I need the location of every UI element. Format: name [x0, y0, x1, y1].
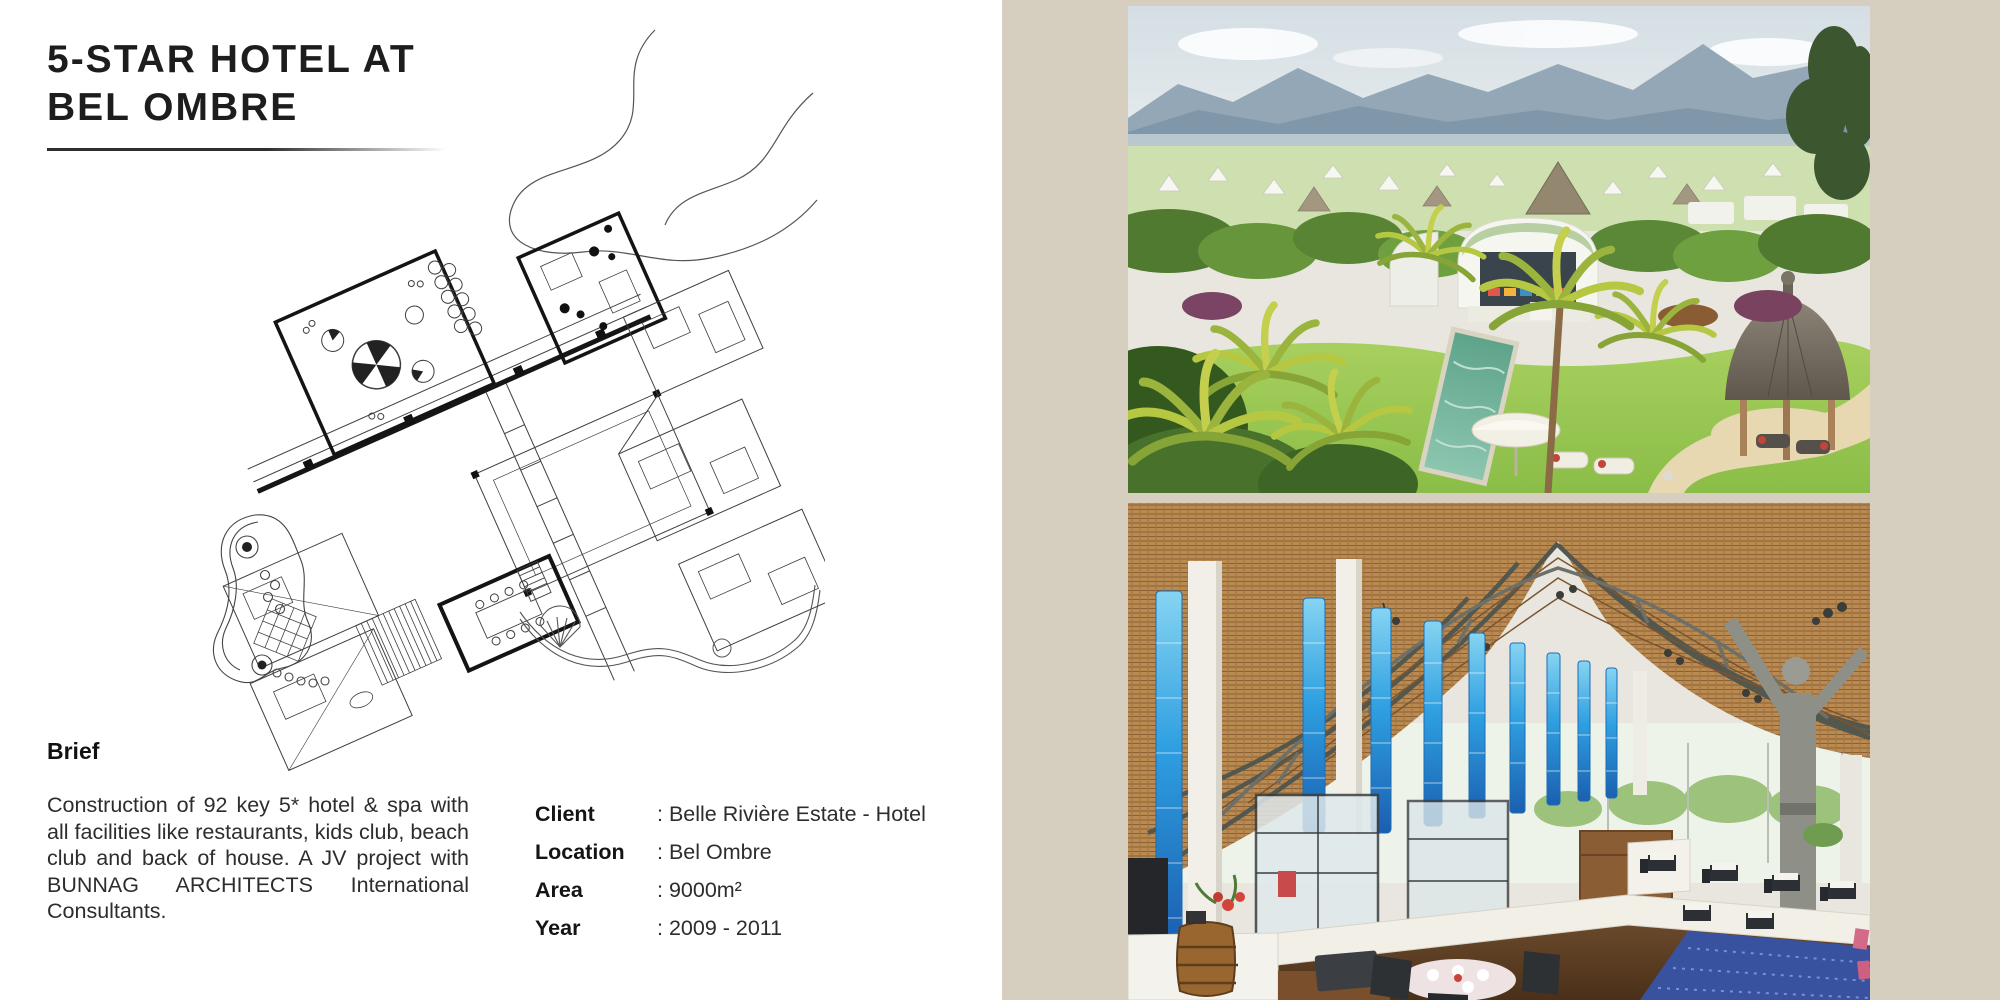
- villa-field: [1128, 146, 1870, 231]
- building-complex: [165, 145, 825, 795]
- detail-row-location: Location : Bel Ombre: [535, 838, 975, 866]
- detail-label: Location: [535, 838, 657, 866]
- central-corridor: [486, 384, 634, 681]
- site-boundary-contours: [509, 30, 817, 261]
- timber-deck: [356, 599, 442, 685]
- detail-value: : 9000m²: [657, 876, 975, 904]
- guest-villas-east: [569, 270, 825, 655]
- guest-villas-west: [210, 533, 422, 770]
- project-details: Client : Belle Rivière Estate - Hotel Lo…: [535, 800, 975, 952]
- detail-value: : 2009 - 2011: [657, 914, 975, 942]
- pool-court: [439, 556, 578, 671]
- aerial-resort-illustration: [1128, 6, 1870, 493]
- pink-cushion: [1853, 928, 1870, 950]
- detail-row-year: Year : 2009 - 2011: [535, 914, 975, 942]
- site-plan-svg: [165, 15, 825, 795]
- detail-label: Year: [535, 914, 657, 942]
- detail-value: : Bel Ombre: [657, 838, 975, 866]
- brief-body: Construction of 92 key 5* hotel & spa wi…: [47, 792, 469, 925]
- site-plan-drawing: [165, 15, 825, 795]
- planter: [1803, 823, 1843, 847]
- detail-label: Client: [535, 800, 657, 828]
- detail-value: : Belle Rivière Estate - Hotel: [657, 800, 975, 828]
- brief-heading: Brief: [47, 738, 99, 765]
- restaurant-interior-photo: [1128, 503, 1870, 1000]
- pond-garden: [213, 515, 329, 687]
- aerial-resort-photo: [1128, 6, 1870, 493]
- detail-row-area: Area : 9000m²: [535, 876, 975, 904]
- brochure-page: 5-STAR HOTEL AT BEL OMBRE: [0, 0, 2000, 1000]
- restaurant-interior-illustration: [1128, 503, 1870, 1000]
- main-hall: [470, 389, 714, 597]
- detail-label: Area: [535, 876, 657, 904]
- main-spine-wall: [257, 314, 652, 493]
- detail-row-client: Client : Belle Rivière Estate - Hotel: [535, 800, 975, 828]
- photo-panel: [1002, 0, 2000, 1000]
